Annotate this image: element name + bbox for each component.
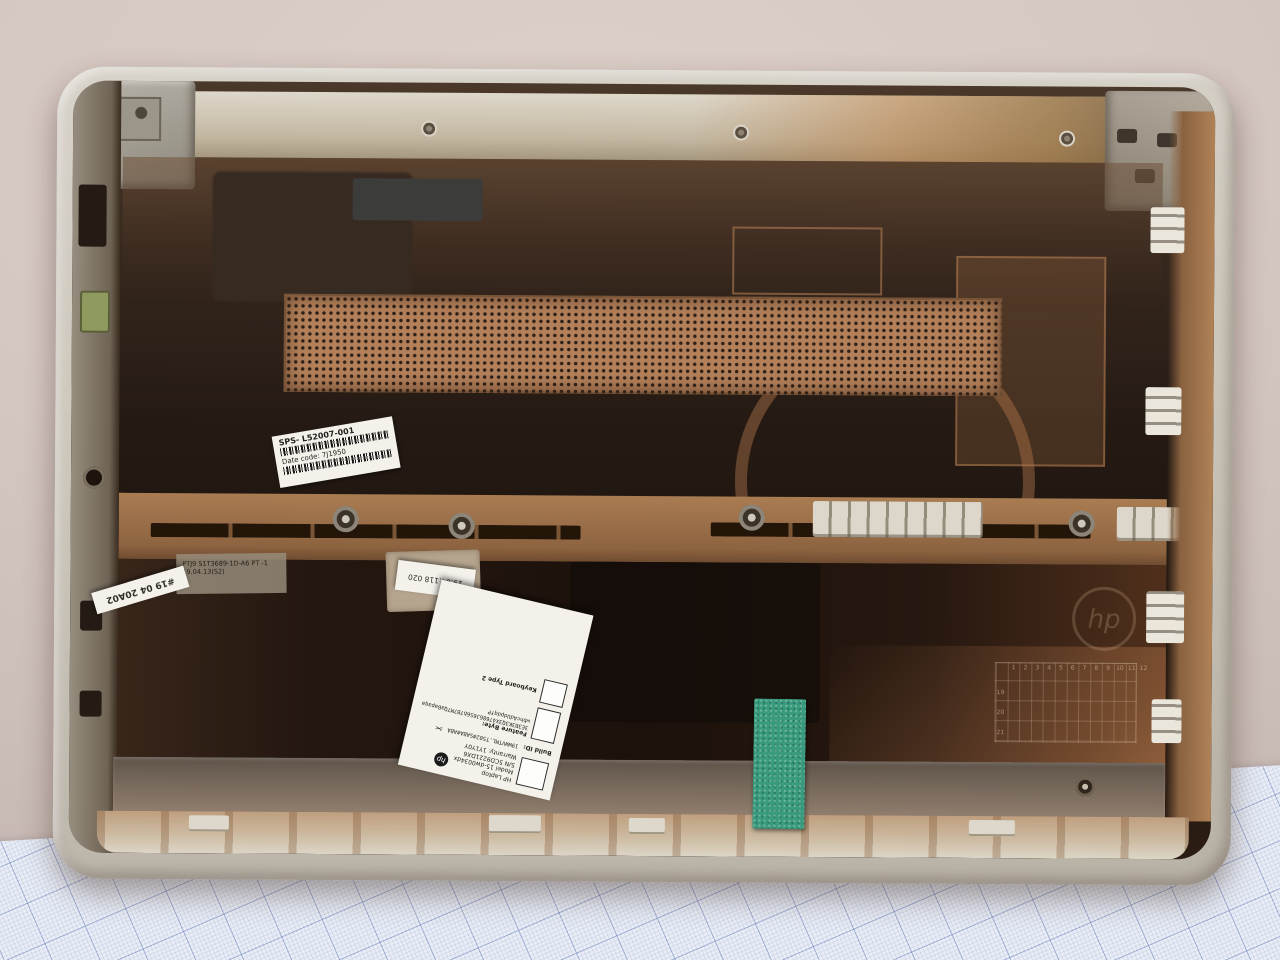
- white-fin-clip: [1146, 591, 1184, 643]
- datamatrix-code: [531, 708, 561, 745]
- screw-boss-bottom: [1075, 777, 1095, 797]
- edge-tab: [969, 820, 1015, 836]
- edge-tab: [189, 815, 229, 831]
- screw-standoff: [739, 505, 765, 531]
- molded-step-outline: [732, 227, 882, 296]
- side-hole: [83, 467, 105, 489]
- green-connector-port: [80, 291, 110, 333]
- side-cutout: [80, 691, 102, 717]
- vent-slot: [151, 523, 581, 540]
- top-ledge-rust-stain: [693, 94, 1145, 163]
- vent-mesh: [284, 294, 1003, 396]
- screw-standoff: [449, 513, 475, 539]
- case-interior: 123456789101112 192021 hp SPS- L52007-00…: [69, 81, 1216, 860]
- screw-boss: [421, 121, 437, 137]
- mold-grid-columns: 123456789101112: [1008, 664, 1150, 672]
- green-foam-pad: [752, 698, 806, 829]
- datamatrix-code: [515, 757, 549, 791]
- mold-grid-rows: 192021: [996, 683, 1004, 743]
- scissors-icon: ✂: [435, 722, 444, 731]
- white-fin-clip: [1151, 699, 1181, 743]
- mold-date-grid: 123456789101112 192021: [994, 662, 1136, 743]
- white-fin-clip: [1145, 387, 1181, 435]
- sps-part-label: SPS- L52007-001 Date code: 7J1950: [272, 416, 401, 488]
- keyboard-type: Keyboard Type 2: [481, 674, 537, 694]
- screw-standoff: [1069, 511, 1095, 537]
- hp-logo-icon: hp: [433, 751, 450, 768]
- build-id-label: Build ID:: [523, 743, 553, 757]
- edge-tab: [629, 818, 665, 834]
- screw-standoff: [333, 506, 359, 532]
- plastic-clip: [813, 501, 983, 538]
- datamatrix-code: [539, 680, 568, 709]
- screw-boss: [1059, 131, 1075, 147]
- dark-tape-patch: [353, 178, 483, 221]
- mold-info-line1: PTJ9 S1T3689-1D-A6 PT -1: [182, 559, 280, 568]
- white-fin-clip: [1150, 207, 1184, 253]
- photo-laptop-bottom-case: 123456789101112 192021 hp SPS- L52007-00…: [0, 0, 1280, 960]
- mold-info-label: PTJ9 S1T3689-1D-A6 PT -1 19.04.13(S2): [176, 553, 286, 594]
- screw-boss: [733, 125, 749, 141]
- side-cutout: [78, 185, 106, 247]
- laptop-bottom-case: 123456789101112 192021 hp SPS- L52007-00…: [53, 66, 1236, 885]
- mold-info-line2: 19.04.13(S2): [182, 567, 280, 576]
- edge-tab: [489, 815, 541, 833]
- hp-molded-logo: hp: [1072, 587, 1136, 651]
